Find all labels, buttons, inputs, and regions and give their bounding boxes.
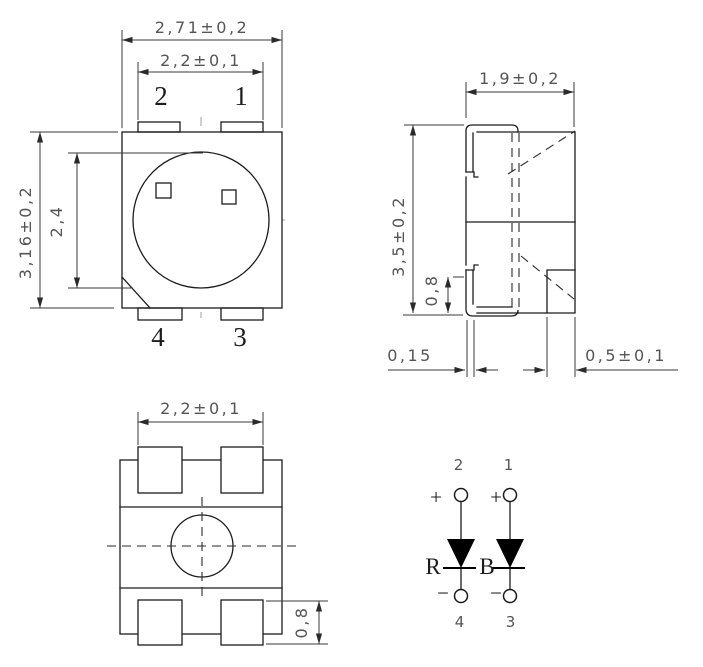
plus-sign-left: + <box>430 485 442 509</box>
led-label-blue: B <box>479 554 494 579</box>
pin-label-3: 3 <box>233 322 247 352</box>
led-label-red: R <box>425 554 441 579</box>
dim-text-side-height: 3,5±0,2 <box>389 195 408 277</box>
circuit-pin-1: 1 <box>504 456 515 474</box>
bottom-pad-pin1 <box>221 447 263 493</box>
bottom-pad-pin4 <box>138 600 182 645</box>
dim-text-body-width: 1,9±0,2 <box>479 69 561 88</box>
pin-label-4: 4 <box>151 322 165 352</box>
dim-text-lead-thickness: 0,15 <box>387 346 433 365</box>
circuit-pin-3: 3 <box>506 613 517 631</box>
dim-text-bottom-pad-span: 2,2±0,1 <box>160 399 242 418</box>
pin-label-2: 2 <box>154 81 168 111</box>
dim-text-foot-height: 0,8 <box>422 274 441 307</box>
minus-sign-right: − <box>490 581 502 605</box>
dim-text-overall-height: 3,16±0,2 <box>16 185 35 279</box>
plus-sign-right: + <box>490 485 502 509</box>
bottom-pad-pin3 <box>221 600 263 645</box>
dim-text-bottom-pad-width: 0,5±0,1 <box>585 346 667 365</box>
package-body-outline <box>122 132 282 308</box>
technical-drawing-page: 2,71±0,2 2,2±0,1 3,16±0,2 2,4 2 1 4 3 <box>0 0 703 667</box>
dim-text-bottom-pad-height: 0,8 <box>292 606 311 639</box>
dim-text-overall-width: 2,71±0,2 <box>155 18 249 37</box>
circuit-pin-4: 4 <box>455 613 466 631</box>
pin-label-1: 1 <box>234 81 248 111</box>
background <box>0 0 703 667</box>
bottom-pad-pin2 <box>138 447 182 493</box>
led-package-drawing: 2,71±0,2 2,2±0,1 3,16±0,2 2,4 2 1 4 3 <box>0 0 703 667</box>
minus-sign-left: − <box>437 581 449 605</box>
dim-text-pad-span: 2,2±0,1 <box>160 51 242 70</box>
dim-text-lens-diameter: 2,4 <box>47 205 66 238</box>
circuit-pin-2: 2 <box>454 456 465 474</box>
